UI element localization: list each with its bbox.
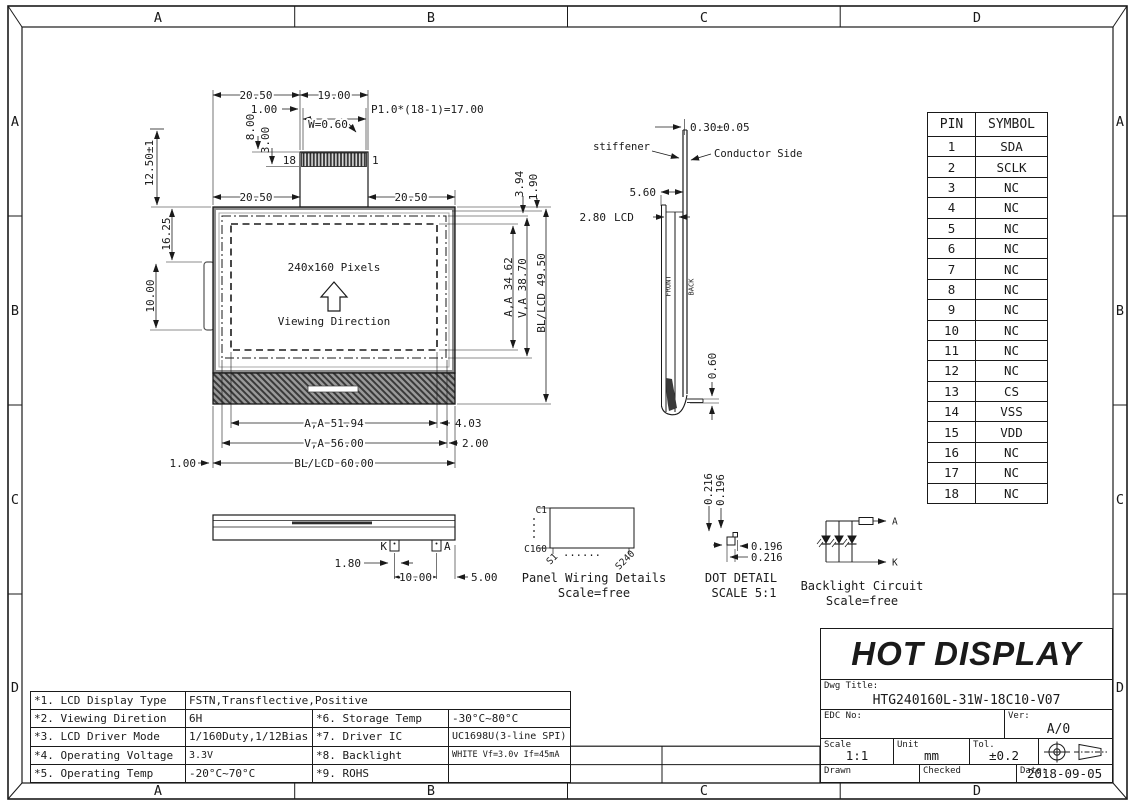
- dwg-title-label: Dwg Title:: [824, 681, 878, 691]
- version-cell: Ver: A/0: [1004, 710, 1112, 738]
- pin-table-row: 4NC: [928, 198, 1048, 218]
- dim-800: 8.00: [244, 114, 257, 141]
- conductor-side-label: Conductor Side: [714, 148, 803, 160]
- dim-100-bottom: 1.00: [170, 457, 197, 470]
- edc-no-cell: EDC No:: [821, 710, 1004, 738]
- dim-190: 1.90: [527, 174, 540, 201]
- pin-symbol-cell: NC: [976, 279, 1048, 299]
- company-logo: HOT DISPLAY: [821, 629, 1112, 679]
- pin-table-row: 16NC: [928, 442, 1048, 462]
- pin-number-cell: 2: [928, 157, 976, 177]
- spec-value: FSTN,Transflective,Positive: [186, 692, 571, 710]
- pin-number-cell: 1: [928, 137, 976, 157]
- spec-label: *5. Operating Temp: [31, 764, 186, 782]
- dim-300: 3.00: [259, 127, 272, 154]
- dim-1000-bottom: 10.00: [399, 571, 432, 584]
- pin-number-cell: 18: [928, 483, 976, 503]
- zone-label-left-b: B: [11, 303, 19, 319]
- spec-value: [449, 764, 571, 782]
- pin-table-row: 15VDD: [928, 422, 1048, 442]
- led-symbols: [817, 536, 857, 547]
- dim-2050-top: 20.50: [239, 89, 272, 102]
- pin-number-1: 1: [372, 154, 379, 167]
- dim-403: 4.03: [455, 417, 482, 430]
- dim-060: 0.60: [706, 353, 719, 380]
- pin-symbol-cell: VSS: [976, 402, 1048, 422]
- spec-value: WHITE Vf=3.0v If=45mA: [449, 746, 571, 764]
- pin-number-cell: 3: [928, 177, 976, 197]
- pin-number-cell: 17: [928, 463, 976, 483]
- pin-symbol-cell: NC: [976, 340, 1048, 360]
- zone-label-right-a: A: [1116, 114, 1124, 130]
- pin-number-cell: 16: [928, 442, 976, 462]
- pin-number-18: 18: [283, 154, 296, 167]
- pin-symbol-cell: CS: [976, 381, 1048, 401]
- pin-table-row: 3NC: [928, 177, 1048, 197]
- unit-cell: Unit mm: [893, 739, 969, 764]
- dim-bl-horizontal: BL/LCD 60.00: [294, 457, 373, 470]
- pin-table-row: 1SDA: [928, 137, 1048, 157]
- pin-table-row: 11NC: [928, 340, 1048, 360]
- pin-symbol-cell: NC: [976, 238, 1048, 258]
- pin-number-cell: 14: [928, 402, 976, 422]
- date-cell: Date: 2018-09-05: [1016, 765, 1112, 782]
- dim-va-vertical: V,A 38.70: [516, 258, 529, 318]
- pin-symbol-cell: NC: [976, 463, 1048, 483]
- zone-label-bottom-c: C: [700, 783, 708, 799]
- anode-label: A: [444, 540, 451, 553]
- pin-table-row: 8NC: [928, 279, 1048, 299]
- dim-1625: 16.25: [160, 217, 173, 250]
- drawn-cell: Drawn: [821, 765, 919, 782]
- projection-symbol-cell: [1038, 739, 1112, 764]
- bottom-view-labels: K A 1.80 10.00 5.00: [335, 540, 498, 584]
- pin-symbol-cell: NC: [976, 259, 1048, 279]
- pin-number-cell: 15: [928, 422, 976, 442]
- dim-500: 5.00: [471, 571, 498, 584]
- scale-cell: Scale 1:1: [821, 739, 893, 764]
- anode-pad: [432, 540, 441, 551]
- pin-table-row: 5NC: [928, 218, 1048, 238]
- spec-row: *5. Operating Temp -20°C~70°C *9. ROHS: [31, 764, 571, 782]
- spec-label: *1. LCD Display Type: [31, 692, 186, 710]
- spec-value: -20°C~70°C: [186, 764, 313, 782]
- dim-1000-left: 10.00: [144, 279, 157, 312]
- dwg-title-value: HTG240160L-31W-18C10-V07: [821, 693, 1112, 708]
- tolerance-value: ±0.2: [970, 748, 1038, 763]
- pin-number-cell: 12: [928, 361, 976, 381]
- backlight-circuit-title: Backlight Circuit: [801, 579, 924, 593]
- dim-2050-right: 20.50: [394, 191, 427, 204]
- pin-symbol-cell: NC: [976, 320, 1048, 340]
- spec-table-extension: [570, 746, 820, 783]
- dim-200: 2.00: [462, 437, 489, 450]
- pin-symbol-cell: NC: [976, 442, 1048, 462]
- zone-label-top-d: D: [973, 10, 981, 26]
- dim-va-horizontal: V,A 56.00: [304, 437, 364, 450]
- pin-table: PIN SYMBOL 1SDA2SCLK3NC4NC5NC6NC7NC8NC9N…: [927, 112, 1048, 504]
- zone-label-left-c: C: [11, 492, 19, 508]
- dot-dim-v1: 0.216: [703, 473, 715, 505]
- pin-symbol-cell: NC: [976, 483, 1048, 503]
- c1-label: C1: [536, 505, 548, 516]
- bottom-view-dark-strip: [292, 522, 372, 525]
- zone-label-top-c: C: [700, 10, 708, 26]
- pin-number-cell: 8: [928, 279, 976, 299]
- backlight-bar-slot: [308, 386, 358, 392]
- spec-label: *9. ROHS: [313, 764, 449, 782]
- dim-aa-horizontal: A,A 51.94: [304, 417, 364, 430]
- pin-table-header-row: PIN SYMBOL: [928, 113, 1048, 137]
- fpc-pins-hatch: [302, 153, 367, 167]
- pin-symbol-cell: NC: [976, 177, 1048, 197]
- dim-1250: 12.50±1: [143, 140, 156, 186]
- pixels-label: 240x160 Pixels: [288, 261, 381, 274]
- zone-label-bottom-b: B: [427, 783, 435, 799]
- zone-label-top-b: B: [427, 10, 435, 26]
- checked-label: Checked: [923, 766, 961, 776]
- cathode-terminal-label: K: [892, 558, 898, 569]
- front-view: [204, 152, 455, 404]
- checked-cell: Checked: [919, 765, 1016, 782]
- dim-2050-left: 20.50: [239, 191, 272, 204]
- spec-label: *6. Storage Temp: [313, 710, 449, 728]
- symbol-header-cell: SYMBOL: [976, 113, 1048, 137]
- pin-number-cell: 7: [928, 259, 976, 279]
- pin-number-cell: 11: [928, 340, 976, 360]
- pin-table-row: 13CS: [928, 381, 1048, 401]
- dim-aa-vertical: A,A 34.62: [502, 257, 515, 317]
- spec-value: 6H: [186, 710, 313, 728]
- dot-detail-labels: 0.216 0.196 0.196 0.216 DOT DETAIL SCALE…: [703, 473, 783, 600]
- zone-label-right-b: B: [1116, 303, 1124, 319]
- version-value: A/0: [1005, 722, 1112, 737]
- spec-value: 1/160Duty,1/12Bias: [186, 728, 313, 746]
- resistor-symbol: [859, 518, 873, 525]
- spec-table: *1. LCD Display Type FSTN,Transflective,…: [30, 691, 571, 783]
- spec-row: *4. Operating Voltage 3.3V *8. Backlight…: [31, 746, 571, 764]
- zone-label-right-d: D: [1116, 680, 1124, 696]
- zone-label-left-a: A: [11, 114, 19, 130]
- pin-table-row: 10NC: [928, 320, 1048, 340]
- pin-symbol-cell: VDD: [976, 422, 1048, 442]
- date-value: 2018-09-05: [1017, 766, 1112, 781]
- anode-terminal-label: A: [892, 517, 898, 528]
- pin-symbol-cell: SCLK: [976, 157, 1048, 177]
- spec-value: UC1698U(3-line SPI): [449, 728, 571, 746]
- dwg-title-cell: Dwg Title: HTG240160L-31W-18C10-V07: [821, 680, 1112, 709]
- back-label: BACK: [688, 278, 696, 296]
- pin-table-row: 6NC: [928, 238, 1048, 258]
- pin-symbol-cell: NC: [976, 300, 1048, 320]
- zone-label-left-d: D: [11, 680, 19, 696]
- viewing-direction-label: Viewing Direction: [278, 315, 391, 328]
- side-view: [662, 130, 704, 415]
- tolerance-cell: Tol. ±0.2: [969, 739, 1038, 764]
- scale-value: 1:1: [821, 748, 893, 763]
- edc-no-label: EDC No:: [824, 711, 862, 721]
- panel-wiring-labels: C1 C160 S1 S240 ...... Panel Wiring Deta…: [522, 505, 667, 600]
- dot-dim-h2: 0.216: [751, 552, 783, 564]
- third-angle-projection-icon: [1041, 740, 1111, 764]
- unit-value: mm: [894, 748, 969, 763]
- dim-030: 0.30±0.05: [690, 121, 750, 134]
- pin-table-row: 9NC: [928, 300, 1048, 320]
- pin-symbol-cell: NC: [976, 198, 1048, 218]
- dim-bl-vertical: BL/LCD 49.50: [535, 253, 548, 332]
- spec-label: *7. Driver IC: [313, 728, 449, 746]
- cathode-pad: [390, 540, 399, 551]
- spec-value: -30°C~80°C: [449, 710, 571, 728]
- dim-1900: 19.00: [317, 89, 350, 102]
- dot-detail: [709, 506, 748, 562]
- pin-number-cell: 5: [928, 218, 976, 238]
- pin-number-cell: 10: [928, 320, 976, 340]
- title-block: HOT DISPLAY Dwg Title: HTG240160L-31W-18…: [820, 628, 1113, 783]
- dot-detail-title: DOT DETAIL: [705, 571, 777, 585]
- wiring-dots: ......: [563, 547, 601, 559]
- dot-detail-scale: SCALE 5:1: [711, 586, 776, 600]
- zone-label-bottom-a: A: [154, 783, 162, 799]
- dim-560: 5.60: [630, 186, 657, 199]
- pin-table-body: 1SDA2SCLK3NC4NC5NC6NC7NC8NC9NC10NC11NC12…: [928, 137, 1048, 504]
- front-label: FRONT: [665, 275, 673, 297]
- dim-180: 1.80: [335, 557, 362, 570]
- pin-number-cell: 4: [928, 198, 976, 218]
- pin-table-row: 12NC: [928, 361, 1048, 381]
- backlight-circuit-scale: Scale=free: [826, 594, 898, 608]
- spec-label: *8. Backlight: [313, 746, 449, 764]
- spec-row: *2. Viewing Diretion 6H *6. Storage Temp…: [31, 710, 571, 728]
- spec-label: *3. LCD Driver Mode: [31, 728, 186, 746]
- drawn-label: Drawn: [824, 766, 851, 776]
- dim-394: 3.94: [513, 170, 526, 197]
- version-label: Ver:: [1008, 711, 1030, 721]
- pin-number-cell: 6: [928, 238, 976, 258]
- pin-header-cell: PIN: [928, 113, 976, 137]
- dim-280: 2.80: [580, 211, 607, 224]
- pin-table-row: 14VSS: [928, 402, 1048, 422]
- dot-dim-v2: 0.196: [715, 474, 727, 506]
- panel-wiring-scale: Scale=free: [558, 586, 630, 600]
- spec-row: *1. LCD Display Type FSTN,Transflective,…: [31, 692, 571, 710]
- s240-label: S240: [613, 548, 637, 572]
- drawing-sheet: A B C D A B C D A B C D A B C D: [0, 0, 1135, 806]
- spec-value: 3.3V: [186, 746, 313, 764]
- c160-label: C160: [524, 544, 547, 555]
- pin-symbol-cell: NC: [976, 361, 1048, 381]
- dim-w060: W=0.60: [308, 118, 348, 131]
- spec-row: *3. LCD Driver Mode 1/160Duty,1/12Bias *…: [31, 728, 571, 746]
- stiffener-label: stiffener: [593, 141, 650, 153]
- bottom-view: [213, 515, 455, 551]
- lcd-label: LCD: [614, 211, 634, 224]
- pin-symbol-cell: SDA: [976, 137, 1048, 157]
- pin-table-row: 18NC: [928, 483, 1048, 503]
- pin-symbol-cell: NC: [976, 218, 1048, 238]
- panel-wiring-title: Panel Wiring Details: [522, 571, 667, 585]
- dim-pitch: P1.0*(18-1)=17.00: [371, 103, 484, 116]
- spec-label: *4. Operating Voltage: [31, 746, 186, 764]
- backlight-circuit: [817, 518, 886, 563]
- pin-table-row: 7NC: [928, 259, 1048, 279]
- cathode-label: K: [380, 540, 387, 553]
- spec-label: *2. Viewing Diretion: [31, 710, 186, 728]
- zone-label-bottom-d: D: [973, 783, 981, 799]
- pin-table-row: 17NC: [928, 463, 1048, 483]
- pin-table-row: 2SCLK: [928, 157, 1048, 177]
- pin-number-cell: 9: [928, 300, 976, 320]
- pin-number-cell: 13: [928, 381, 976, 401]
- zone-label-top-a: A: [154, 10, 162, 26]
- zone-label-right-c: C: [1116, 492, 1124, 508]
